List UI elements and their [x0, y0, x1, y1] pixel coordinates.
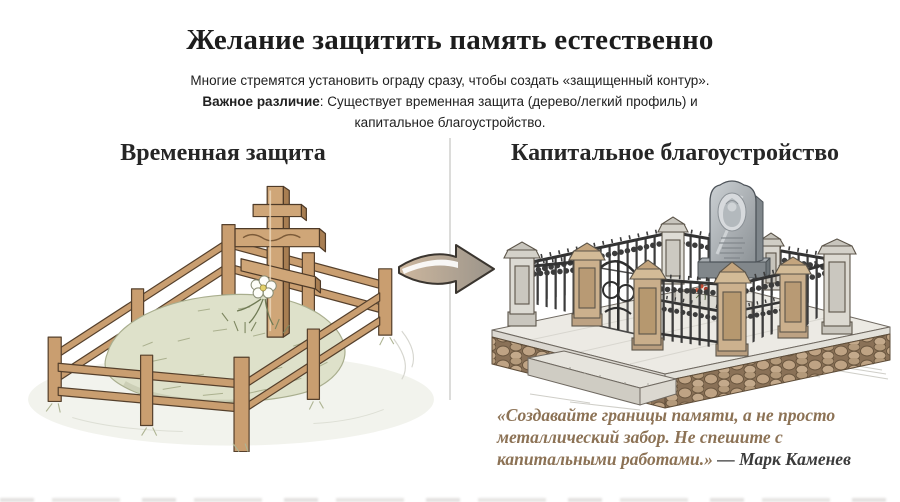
intro-emphasis: Важное различие: [202, 94, 319, 109]
infographic-canvas: Желание защитить память естественно Мног…: [0, 0, 900, 502]
permanent-improvement-illustration: [470, 162, 900, 412]
intro-line-2: : Существует временная защита (дерево/ле…: [320, 94, 698, 109]
intro-text: Многие стремятся установить ограду сразу…: [100, 70, 800, 133]
quote-attribution: — Марк Каменев: [717, 449, 851, 469]
page-title: Желание защитить память естественно: [0, 24, 900, 57]
cropped-bottom-text-strip: [0, 498, 900, 502]
stone-monument-drawing: [470, 162, 900, 412]
intro-line-3: капитальное благоустройство.: [354, 115, 545, 130]
temporary-protection-illustration: [12, 170, 444, 452]
left-panel-heading: Временная защита: [0, 140, 446, 167]
quote-block: «Создавайте границы памяти, а не просто …: [497, 404, 889, 470]
wooden-grave-fence-drawing: [12, 170, 444, 452]
intro-line-1: Многие стремятся установить ограду сразу…: [190, 73, 709, 88]
